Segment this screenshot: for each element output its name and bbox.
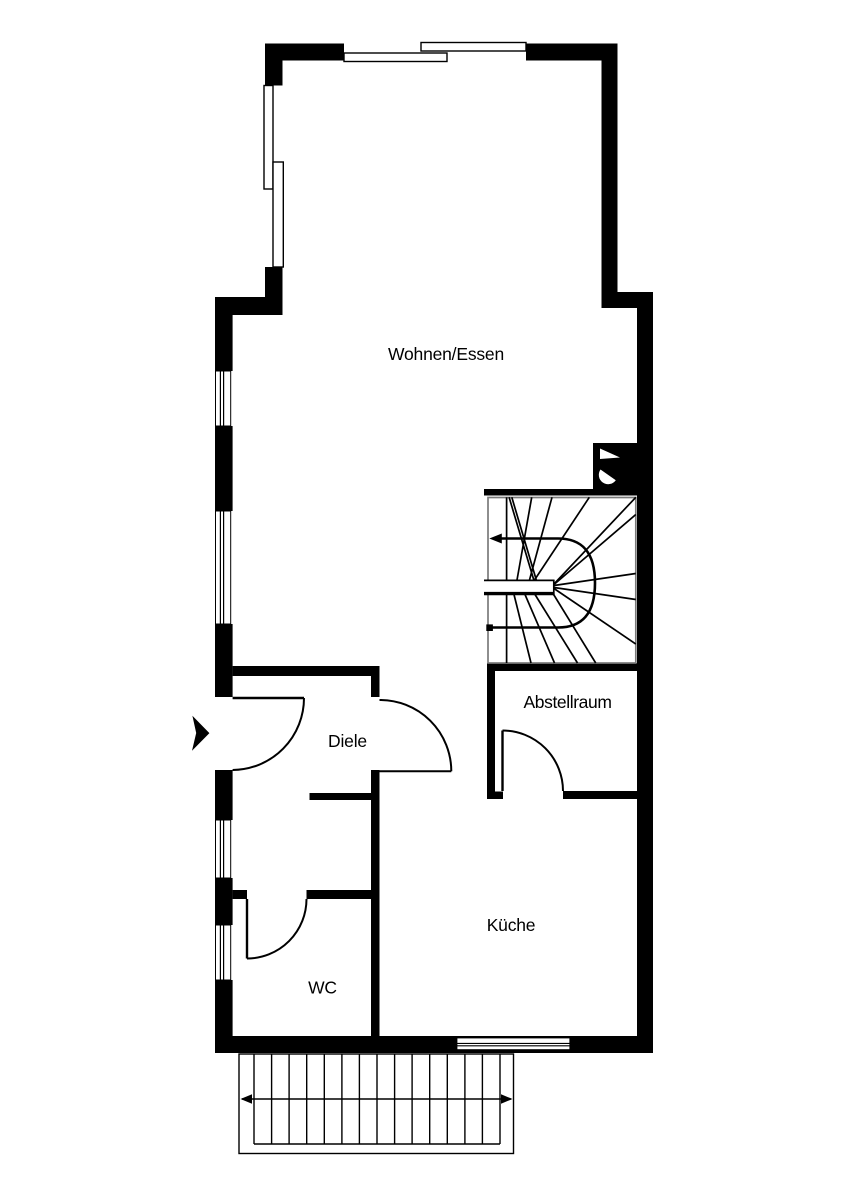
svg-text:Diele: Diele [328, 731, 367, 751]
svg-text:Küche: Küche [487, 915, 536, 935]
svg-text:Wohnen/Essen: Wohnen/Essen [388, 344, 504, 364]
svg-text:WC: WC [308, 978, 337, 998]
svg-text:Abstellraum: Abstellraum [524, 692, 612, 712]
